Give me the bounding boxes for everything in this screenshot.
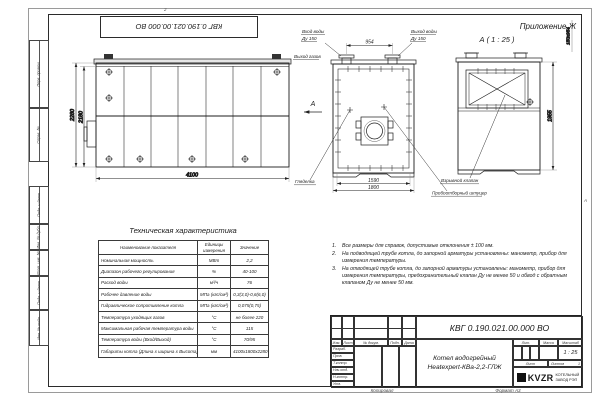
zone-mark-top: 2: [164, 7, 167, 12]
note-text: Все размеры для справок, допустимые откл…: [342, 243, 494, 250]
frame-column-vzam-inv: Взам. инв. №: [29, 250, 49, 276]
row-name: Номинальная мощность: [99, 255, 198, 266]
tech-table: Наименование показателя Единицы измерени…: [98, 240, 269, 358]
lit-cell-1: [513, 346, 522, 360]
tech-table-header-row: Наименование показателя Единицы измерени…: [99, 241, 269, 255]
tb-col-list: Лист: [342, 339, 354, 346]
table-row: Номинальная мощностьМВт2,2: [99, 255, 269, 266]
row-unit: мм: [198, 346, 231, 357]
row-unit: °С: [198, 311, 231, 322]
frame-column-label: Подп. и дата: [37, 193, 41, 217]
row-value: 0,3(3,0)-0,6(6,0): [231, 289, 269, 300]
mass-label: Масса: [539, 339, 558, 346]
sheet-label: Лист: [513, 360, 548, 367]
lit-cell-3: [530, 346, 539, 360]
row-name: Габариты котла (Длина х ширина х Высота): [99, 346, 198, 357]
tb-row-utv: Утв.: [331, 381, 354, 388]
company-name-line2: ЗАВОД РЭП: [555, 378, 579, 383]
tb-col-izm: Изм.: [331, 339, 342, 346]
tech-col-unit: Единицы измерения: [198, 241, 231, 255]
note-text: На подводящей трубе котла, до запорной а…: [342, 251, 570, 265]
sheets-cell: Листов 1: [548, 360, 583, 367]
row-name: Температура воды (Вход/Выход): [99, 334, 198, 345]
row-value: 115: [231, 323, 269, 334]
copied-label: Копировал: [352, 388, 412, 393]
tb-change-divider: [331, 328, 416, 329]
row-name: Расход воды: [99, 277, 198, 288]
tech-table-title: Техническая характеристика: [98, 226, 268, 235]
title-block-doc-number: КВГ 0.190.021.00.000 ВО: [416, 316, 583, 339]
kvzr-logo-text: KVZR: [528, 373, 554, 383]
frame-column-label: Перв. примен.: [37, 61, 41, 86]
tb-sign-podp-col: [382, 346, 399, 388]
tb-col-docnum: № докум.: [354, 339, 388, 346]
row-name: Максимальная рабочая температура воды: [99, 323, 198, 334]
note-number: 1.: [332, 243, 342, 250]
row-value: 76: [231, 277, 269, 288]
note-number: 2.: [332, 251, 342, 265]
frame-column-label: Подп. и дата: [37, 281, 41, 305]
lit-label: Лит.: [513, 339, 539, 346]
row-value: 70/95: [231, 334, 269, 345]
tb-row-nachotd: Нач.отд.: [331, 367, 354, 374]
tb-row-razrab: Разраб.: [331, 346, 354, 353]
row-value: 0,075(0,75): [231, 300, 269, 311]
doc-number-stamp: КВГ 0.190.021.00.000 ВО: [100, 16, 258, 38]
frame-column-podp-data-1: Подп. и дата: [29, 186, 49, 224]
row-name: Диапазон рабочего регулирования: [99, 266, 198, 277]
frame-column-podp-data-2: Подп. и дата: [29, 276, 49, 310]
format-label: Формат А3: [478, 388, 538, 393]
title-block: КВГ 0.190.021.00.000 ВО Изм. Лист № доку…: [330, 315, 582, 387]
lit-cell-2: [522, 346, 531, 360]
company-logo-cell: KVZR КОТЕЛЬНЫЙ ЗАВОД РЭП: [513, 367, 583, 388]
row-unit: °С: [198, 334, 231, 345]
note-text: На отводящей трубе котла, до запорной ар…: [342, 266, 570, 287]
table-row: Рабочее давление водыМПа (кгс/см²)0,3(3,…: [99, 289, 269, 300]
tb-col-podp: Подп.: [388, 339, 402, 346]
table-row: Максимальная рабочая температура воды°С1…: [99, 323, 269, 334]
table-row: Гидравлическое сопротивление котлаМПа (к…: [99, 300, 269, 311]
product-name-cell: Котел водогрейный Heatexpert-КВа-2,2-ГЛЖ: [416, 339, 513, 388]
sheets-label: Листов: [551, 362, 564, 366]
table-row: Расход водым³/ч76: [99, 277, 269, 288]
row-value: 40-100: [231, 266, 269, 277]
table-row: Габариты котла (Длина х ширина х Высота)…: [99, 346, 269, 357]
frame-column-sprav-no: Справ. №: [29, 108, 49, 162]
appendix-label: Приложение Ж: [480, 22, 576, 31]
drawing-sheet: 2280 2180 4100: [0, 0, 600, 400]
table-row: Диапазон рабочего регулирования%40-100: [99, 266, 269, 277]
frame-column-label: Справ. №: [36, 126, 40, 143]
product-name-line2: Heatexpert-КВа-2,2-ГЛЖ: [428, 364, 502, 373]
frame-column-label: Инв. № дубл.: [37, 225, 41, 248]
tech-col-value: Значение: [231, 241, 269, 255]
notes-block: 1. Все размеры для справок, допустимые о…: [332, 243, 570, 288]
tb-row-tkontr: Т.контр.: [331, 360, 354, 367]
frame-column-label: Инв. № подл.: [37, 316, 41, 340]
frame-column-perv-primen: Перв. примен.: [29, 40, 49, 108]
row-value: не более 220: [231, 311, 269, 322]
scale-value: 1 : 25: [558, 346, 583, 360]
table-row: Температура уходящих газов°Сне более 220: [99, 311, 269, 322]
sheets-value: 1: [578, 362, 580, 366]
row-unit: %: [198, 266, 231, 277]
tb-row-prov: Пров.: [331, 353, 354, 360]
tech-col-name: Наименование показателя: [99, 241, 198, 255]
row-name: Температура уходящих газов: [99, 311, 198, 322]
row-unit: МПа (кгс/см²): [198, 300, 231, 311]
note-item: 2. На подводящей трубе котла, до запорно…: [332, 251, 570, 265]
row-name: Гидравлическое сопротивление котла: [99, 300, 198, 311]
kvzr-logo-icon: [517, 373, 526, 382]
product-name-line1: Котел водогрейный: [433, 355, 496, 364]
note-number: 3.: [332, 266, 342, 287]
tb-col-data: Дата: [402, 339, 416, 346]
mass-cell: [539, 346, 558, 360]
scale-label: Масштаб: [558, 339, 583, 346]
frame-column-inv-dubl: Инв. № дубл.: [29, 224, 49, 250]
row-value: 2,2: [231, 255, 269, 266]
frame-column-inv-podl: Инв. № подл.: [29, 310, 49, 346]
company-name: КОТЕЛЬНЫЙ ЗАВОД РЭП: [555, 373, 579, 382]
note-item: 3. На отводящей трубе котла, до запорной…: [332, 266, 570, 287]
frame-column-label: Взам. инв. №: [37, 251, 41, 274]
note-item: 1. Все размеры для справок, допустимые о…: [332, 243, 570, 250]
tb-row-nkontr: Н.контр.: [331, 374, 354, 381]
tb-sign-name-col: [354, 346, 382, 388]
tb-sign-data-col: [399, 346, 416, 388]
zone-mark-right: А: [584, 198, 587, 203]
company-name-line1: КОТЕЛЬНЫЙ: [555, 373, 579, 378]
row-unit: МПа (кгс/см²): [198, 289, 231, 300]
row-value: 4100х1800х2280: [231, 346, 269, 357]
row-unit: МВт: [198, 255, 231, 266]
table-row: Температура воды (Вход/Выход)°С70/95: [99, 334, 269, 345]
row-unit: м³/ч: [198, 277, 231, 288]
row-name: Рабочее давление воды: [99, 289, 198, 300]
row-unit: °С: [198, 323, 231, 334]
